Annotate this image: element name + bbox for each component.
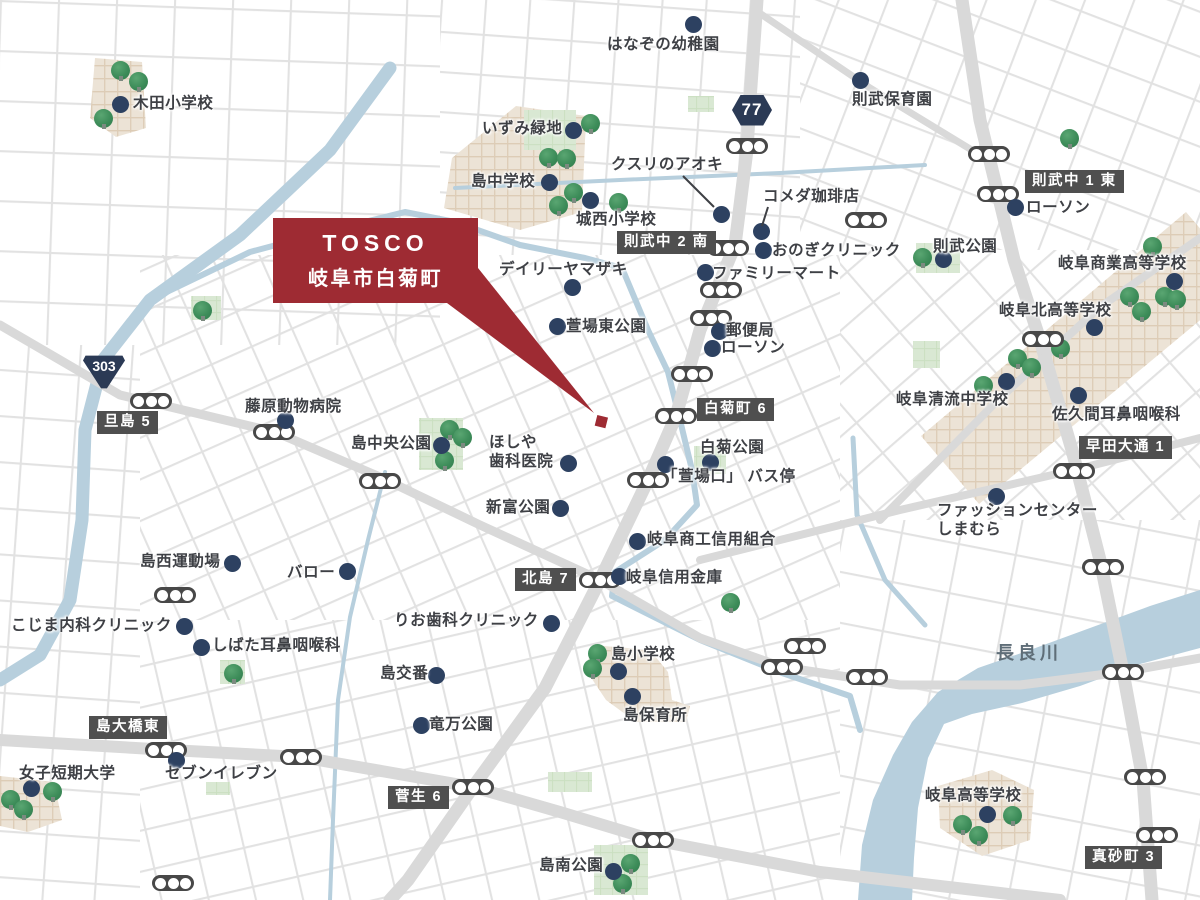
tree-icon-3 — [581, 114, 600, 133]
traffic-light-icon-2 — [726, 138, 768, 154]
tree-icon-7 — [549, 196, 568, 215]
poi-label-26: 岐阜商工信用組合 — [647, 531, 776, 550]
poi-label-40: 岐阜高等学校 — [925, 787, 1022, 806]
traffic-light-icon-27 — [632, 832, 674, 848]
poi-dot-30 — [339, 563, 356, 580]
tree-icon-31 — [224, 664, 243, 683]
poi-dot-25 — [552, 500, 569, 517]
tree-icon-4 — [539, 148, 558, 167]
poi-dot-33 — [428, 667, 445, 684]
map-canvas: 木田小学校はなぞの幼稚園いずみ緑地島中学校城西小学校クスリのアオキコメダ珈琲店お… — [0, 0, 1200, 900]
intersection-badge-5: 北島 7 — [515, 568, 576, 591]
poi-dot-19 — [704, 340, 721, 357]
poi-dot-14 — [998, 373, 1015, 390]
property-callout-subtitle: 岐阜市白菊町 — [308, 262, 443, 291]
traffic-light-icon-12 — [1082, 559, 1124, 575]
poi-dot-15 — [1070, 387, 1087, 404]
poi-label-2: いずみ緑地 — [482, 120, 563, 139]
poi-dot-26 — [629, 533, 646, 550]
traffic-light-icon-25 — [280, 749, 322, 765]
poi-label-11: 則武公園 — [933, 238, 997, 257]
tree-icon-19 — [1143, 237, 1162, 256]
poi-dot-1 — [685, 16, 702, 33]
poi-dot-9 — [852, 72, 869, 89]
poi-label-35: 島小学校 — [611, 646, 675, 665]
poi-label-13: 岐阜北高等学校 — [999, 302, 1112, 321]
poi-dot-4 — [582, 192, 599, 209]
poi-label-14: 岐阜清流中学校 — [896, 391, 1009, 410]
traffic-light-icon-23 — [154, 587, 196, 603]
poi-dot-28 — [543, 615, 560, 632]
tree-icon-8 — [609, 193, 628, 212]
poi-label-16: デイリーヤマザキ — [499, 261, 628, 280]
traffic-light-icon-17 — [1124, 769, 1166, 785]
poi-dot-2 — [565, 122, 582, 139]
traffic-light-icon-26 — [452, 779, 494, 795]
intersection-badge-1: 則武中 1 東 — [1025, 170, 1124, 193]
poi-dot-13 — [1086, 319, 1103, 336]
poi-label-36: 島保育所 — [623, 707, 687, 726]
poi-label-23: 島中央公園 — [351, 435, 432, 454]
poi-label-31: こじま内科クリニック — [11, 617, 172, 636]
poi-dot-0 — [112, 96, 129, 113]
poi-label-0: 木田小学校 — [133, 95, 214, 114]
poi-dot-7 — [755, 242, 772, 259]
poi-dot-23 — [433, 437, 450, 454]
traffic-light-icon-10 — [1022, 331, 1064, 347]
poi-label-34: 竜万公園 — [429, 716, 493, 735]
intersection-badge-7: 菅生 6 — [388, 786, 449, 809]
poi-label-29: 島西運動場 — [140, 553, 221, 572]
poi-label-30: バロー — [287, 564, 335, 583]
poi-dot-12 — [1166, 273, 1183, 290]
poi-label-5: クスリのアオキ — [611, 156, 723, 175]
traffic-light-icon-7 — [671, 366, 713, 382]
tree-icon-18 — [1167, 290, 1186, 309]
traffic-light-icon-14 — [846, 669, 888, 685]
tree-icon-34 — [453, 428, 472, 447]
traffic-light-icon-5 — [700, 282, 742, 298]
poi-dot-18 — [711, 323, 728, 340]
poi-label-8: ファミリーマート — [712, 265, 841, 284]
tree-icon-16 — [1132, 302, 1151, 321]
poi-dot-5 — [713, 206, 730, 223]
intersection-badge-2: 白菊町 6 — [697, 398, 774, 421]
tree-icon-9 — [913, 248, 932, 267]
poi-dot-24 — [560, 455, 577, 472]
tree-icon-22 — [1003, 806, 1022, 825]
poi-label-3: 島中学校 — [471, 173, 535, 192]
poi-dot-17 — [549, 318, 566, 335]
poi-label-20: 白菊公園 — [700, 439, 764, 458]
poi-label-7: おのぎクリニック — [772, 242, 901, 261]
poi-label-24: ほしや 歯科医院 — [489, 434, 553, 471]
tree-icon-1 — [129, 72, 148, 91]
tree-icon-21 — [969, 826, 988, 845]
intersection-badge-4: 早田大通 1 — [1079, 436, 1172, 459]
poi-dot-6 — [753, 223, 770, 240]
tree-icon-2 — [94, 109, 113, 128]
poi-label-15: 佐久間耳鼻咽喉科 — [1052, 406, 1181, 425]
poi-label-6: コメダ珈琲店 — [763, 188, 860, 207]
poi-label-32: しばた耳鼻咽喉科 — [212, 637, 341, 656]
poi-label-38: セブンイレブン — [165, 765, 278, 784]
traffic-light-icon-18 — [1136, 827, 1178, 843]
traffic-light-icon-13 — [1102, 664, 1144, 680]
traffic-light-icon-16 — [784, 638, 826, 654]
traffic-light-icon-19 — [130, 393, 172, 409]
poi-dot-34 — [413, 717, 430, 734]
intersection-badge-6: 島大橋東 — [89, 716, 167, 739]
poi-label-9: 則武保育園 — [852, 91, 933, 110]
poi-label-10: ローソン — [1026, 199, 1090, 218]
poi-label-28: りお歯科クリニック — [394, 612, 539, 631]
tree-icon-27 — [583, 659, 602, 678]
poi-label-22: 藤原動物病院 — [245, 398, 342, 417]
tree-icon-28 — [621, 854, 640, 873]
poi-label-18: 郵便局 — [726, 322, 774, 341]
traffic-light-icon-15 — [761, 659, 803, 675]
property-callout: TOSCO 岐阜市白菊町 — [273, 218, 478, 303]
poi-dot-36 — [624, 688, 641, 705]
poi-dot-8 — [697, 264, 714, 281]
intersection-badge-0: 則武中 2 南 — [617, 231, 716, 254]
poi-dot-10 — [1007, 199, 1024, 216]
traffic-light-icon-8 — [655, 408, 697, 424]
traffic-light-icon-28 — [152, 875, 194, 891]
poi-label-33: 島交番 — [380, 665, 428, 684]
traffic-light-icon-11 — [1053, 463, 1095, 479]
tree-icon-0 — [111, 61, 130, 80]
traffic-light-icon-0 — [968, 146, 1010, 162]
tree-icon-10 — [1060, 129, 1079, 148]
poi-label-27: 岐阜信用金庫 — [626, 569, 723, 588]
poi-dot-32 — [193, 639, 210, 656]
poi-label-19: ローソン — [721, 339, 785, 358]
tree-icon-12 — [1022, 358, 1041, 377]
poi-label-21: 「萱場口」 バス停 — [662, 468, 796, 487]
poi-label-25: 新富公園 — [486, 499, 550, 518]
poi-label-4: 城西小学校 — [576, 211, 657, 230]
poi-dot-29 — [224, 555, 241, 572]
poi-dot-27 — [611, 568, 628, 585]
tree-icon-32 — [193, 301, 212, 320]
tree-icon-30 — [721, 593, 740, 612]
poi-label-41: ファッションセンター しまむら — [937, 502, 1098, 539]
poi-dot-39 — [605, 863, 622, 880]
poi-dot-35 — [610, 663, 627, 680]
poi-label-12: 岐阜商業高等学校 — [1058, 255, 1187, 274]
tree-icon-25 — [43, 782, 62, 801]
river-label: 長良川 — [996, 643, 1062, 665]
traffic-light-icon-3 — [845, 212, 887, 228]
intersection-badge-8: 真砂町 3 — [1085, 846, 1162, 869]
traffic-light-icon-21 — [359, 473, 401, 489]
poi-dot-3 — [541, 174, 558, 191]
tree-icon-5 — [557, 149, 576, 168]
tree-icon-24 — [14, 800, 33, 819]
poi-dot-31 — [176, 618, 193, 635]
poi-dot-16 — [564, 279, 581, 296]
poi-label-1: はなぞの幼稚園 — [607, 36, 720, 55]
poi-label-39: 島南公園 — [539, 857, 603, 876]
intersection-badge-3: 旦島 5 — [97, 411, 158, 434]
poi-dot-40 — [979, 806, 996, 823]
property-callout-title: TOSCO — [322, 230, 428, 257]
poi-label-37: 女子短期大学 — [19, 765, 116, 784]
poi-label-17: 萱場東公園 — [566, 318, 647, 337]
